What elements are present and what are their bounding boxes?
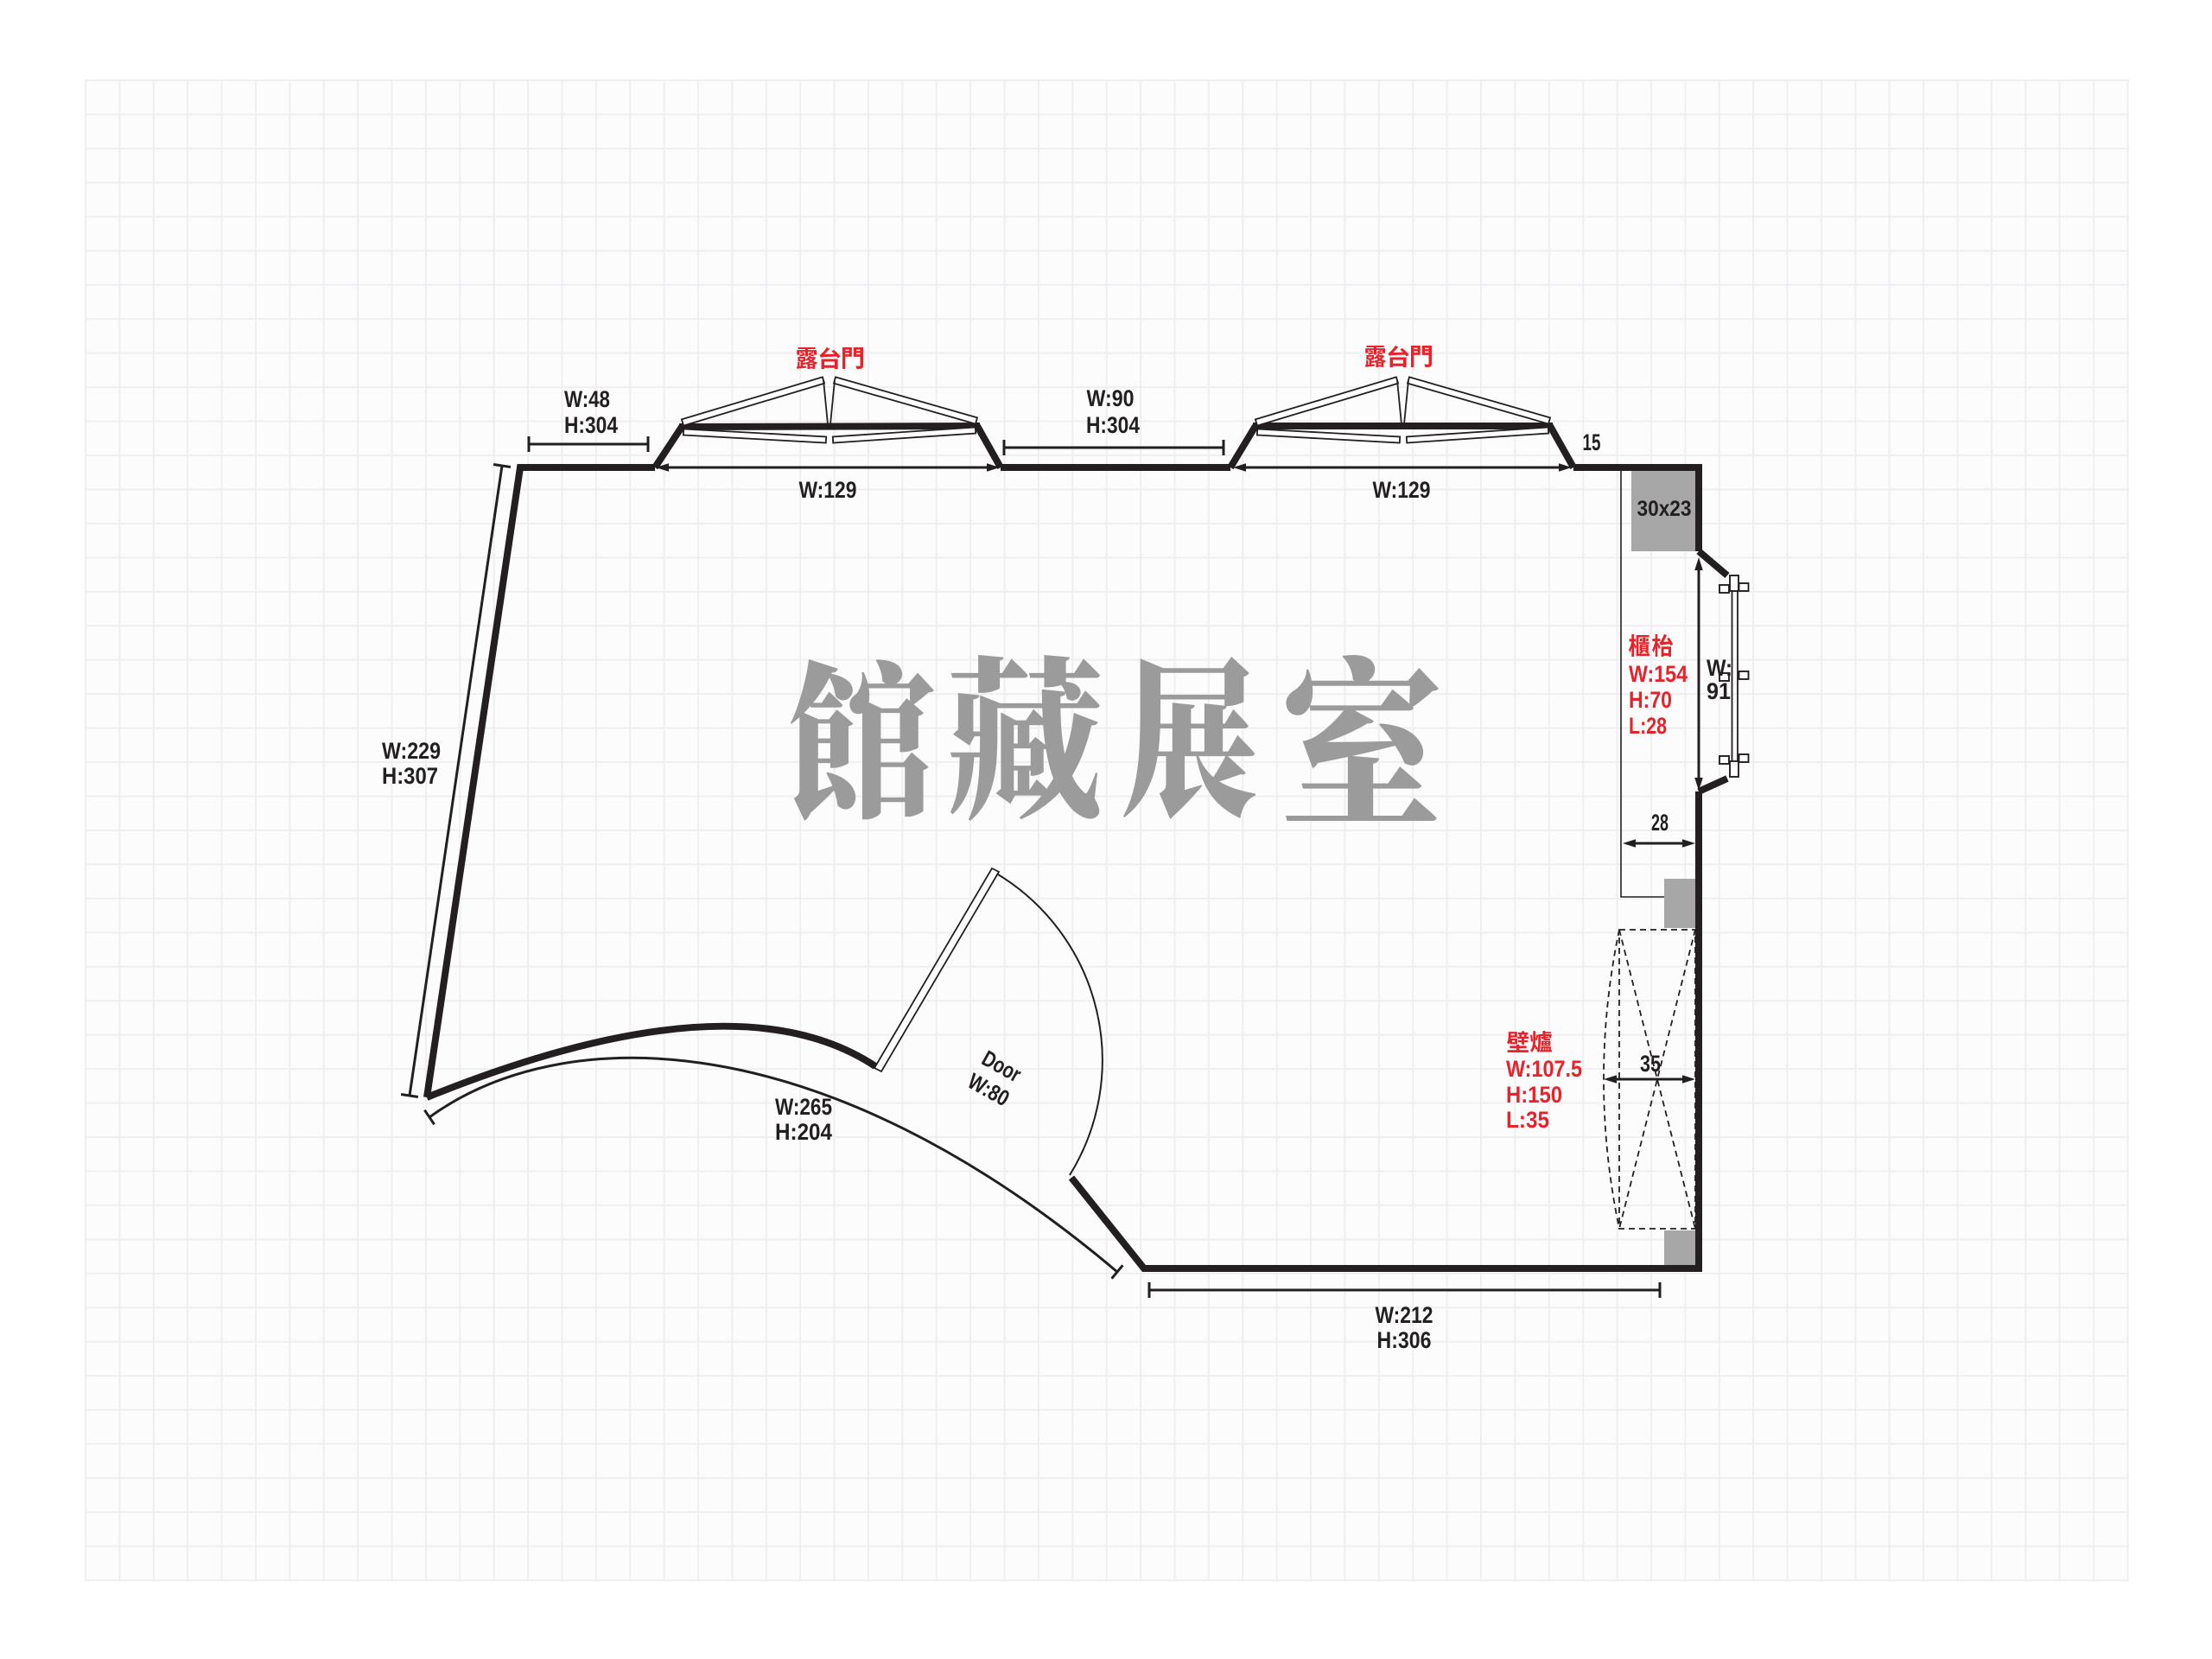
svg-text:W:129: W:129 <box>1373 477 1431 503</box>
svg-text:35: 35 <box>1640 1051 1661 1077</box>
svg-text:H:304: H:304 <box>564 412 618 438</box>
svg-text:H:150: H:150 <box>1506 1082 1562 1108</box>
svg-text:30x23: 30x23 <box>1637 497 1692 521</box>
svg-text:28: 28 <box>1651 810 1669 836</box>
svg-text:W:154: W:154 <box>1629 661 1688 687</box>
svg-text:W:107.5: W:107.5 <box>1506 1056 1582 1082</box>
svg-text:H:204: H:204 <box>775 1119 832 1145</box>
svg-text:L:28: L:28 <box>1629 713 1667 739</box>
svg-text:W:229: W:229 <box>382 738 441 764</box>
svg-text:15: 15 <box>1583 429 1601 455</box>
svg-text:L:35: L:35 <box>1506 1107 1549 1133</box>
svg-text:H:304: H:304 <box>1086 412 1140 438</box>
svg-text:W:48: W:48 <box>564 386 610 412</box>
svg-text:W:90: W:90 <box>1087 385 1135 411</box>
svg-text:W:212: W:212 <box>1376 1302 1433 1328</box>
svg-text:H:306: H:306 <box>1377 1327 1432 1353</box>
svg-text:W:129: W:129 <box>799 477 857 503</box>
svg-text:W:: W: <box>1707 655 1732 681</box>
svg-text:91: 91 <box>1707 678 1731 704</box>
svg-text:H:307: H:307 <box>382 763 438 789</box>
svg-text:H:70: H:70 <box>1629 687 1672 713</box>
svg-text:W:265: W:265 <box>775 1094 832 1120</box>
